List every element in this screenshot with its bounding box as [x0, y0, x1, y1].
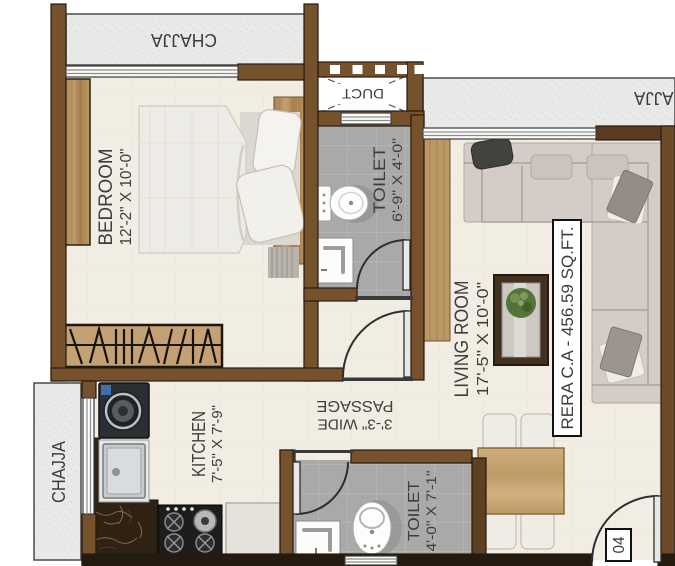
svg-text:RERA C.A - 456.59 SQ.FT.: RERA C.A - 456.59 SQ.FT. — [558, 227, 577, 430]
svg-text:TOILET: TOILET — [406, 481, 423, 541]
svg-text:PASSAGE: PASSAGE — [317, 397, 394, 414]
svg-text:CHAJJA: CHAJJA — [49, 441, 69, 503]
svg-text:6'-9" X 4'-0": 6'-9" X 4'-0" — [389, 138, 405, 222]
svg-text:BEDROOM: BEDROOM — [96, 149, 117, 246]
svg-text:3'-3" WIDE: 3'-3" WIDE — [317, 416, 392, 432]
svg-text:CHAJJA: CHAJJA — [151, 30, 217, 50]
svg-text:KITCHEN: KITCHEN — [189, 411, 209, 477]
svg-text:4'-0" X 7'-1": 4'-0" X 7'-1" — [424, 470, 439, 551]
svg-text:17'-5" X 10'-0": 17'-5" X 10'-0" — [475, 282, 492, 396]
svg-text:DUCT: DUCT — [342, 86, 384, 101]
svg-text:04: 04 — [611, 536, 628, 553]
svg-text:CHAJJA: CHAJJA — [634, 88, 675, 108]
svg-text:TOILET: TOILET — [370, 147, 389, 214]
svg-text:12'-2" X 10'-0": 12'-2" X 10'-0" — [118, 149, 135, 246]
svg-text:LIVING ROOM: LIVING ROOM — [452, 281, 473, 398]
svg-text:7'-5" X 7'-9": 7'-5" X 7'-9" — [210, 405, 226, 483]
